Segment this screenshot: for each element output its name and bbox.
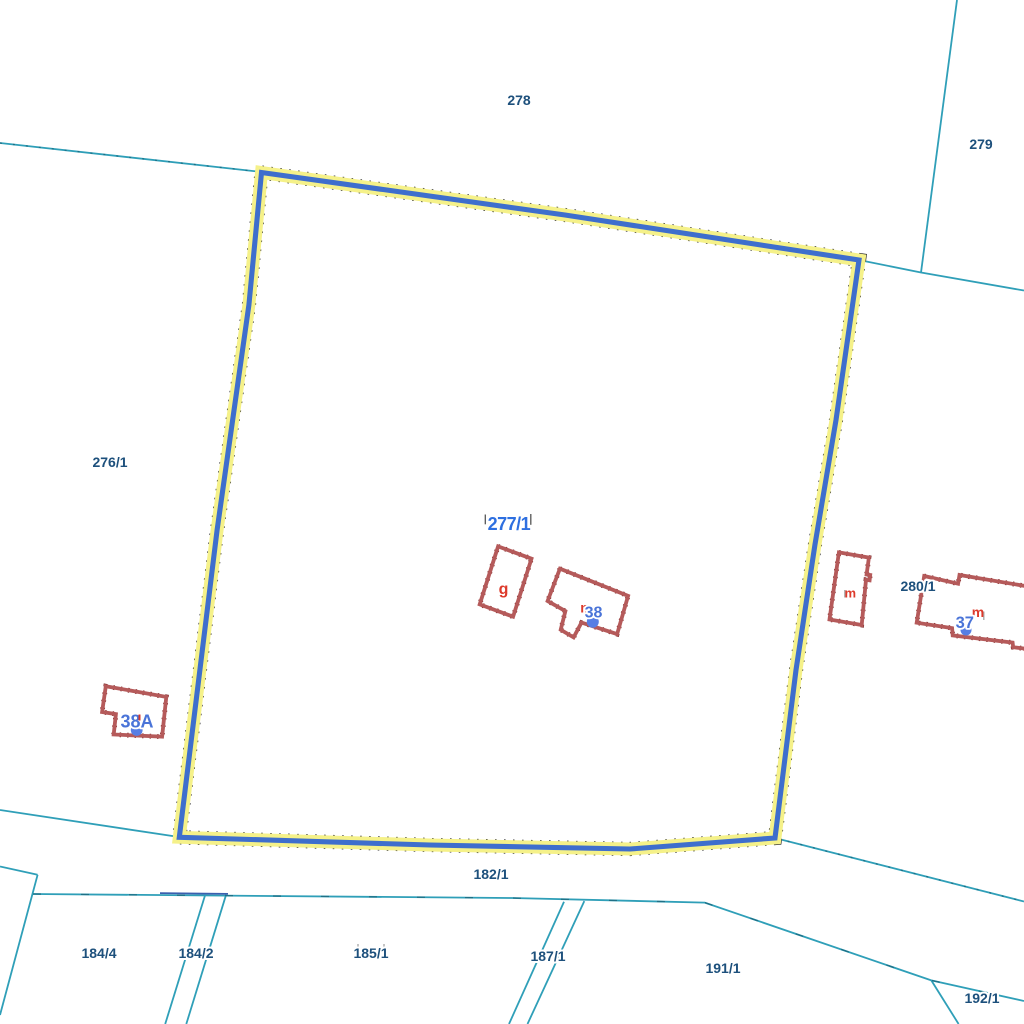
svg-text:187/1: 187/1 [530,948,565,964]
svg-text:182/1: 182/1 [473,866,508,882]
svg-text:184/4: 184/4 [81,945,116,961]
svg-text:276/1: 276/1 [92,454,127,470]
svg-text:38: 38 [585,605,603,622]
svg-text:g: g [499,581,509,598]
svg-text:m: m [845,586,857,601]
svg-text:184/2: 184/2 [178,945,213,961]
svg-text:277/1: 277/1 [488,514,531,534]
svg-text:280/1: 280/1 [900,578,935,594]
svg-text:185/1: 185/1 [353,945,388,961]
svg-text:192/1: 192/1 [964,990,999,1006]
svg-text:191/1: 191/1 [705,960,740,976]
svg-text:279: 279 [969,136,993,152]
svg-text:38A: 38A [120,711,153,731]
svg-text:278: 278 [507,92,531,108]
svg-text:37: 37 [956,614,974,632]
